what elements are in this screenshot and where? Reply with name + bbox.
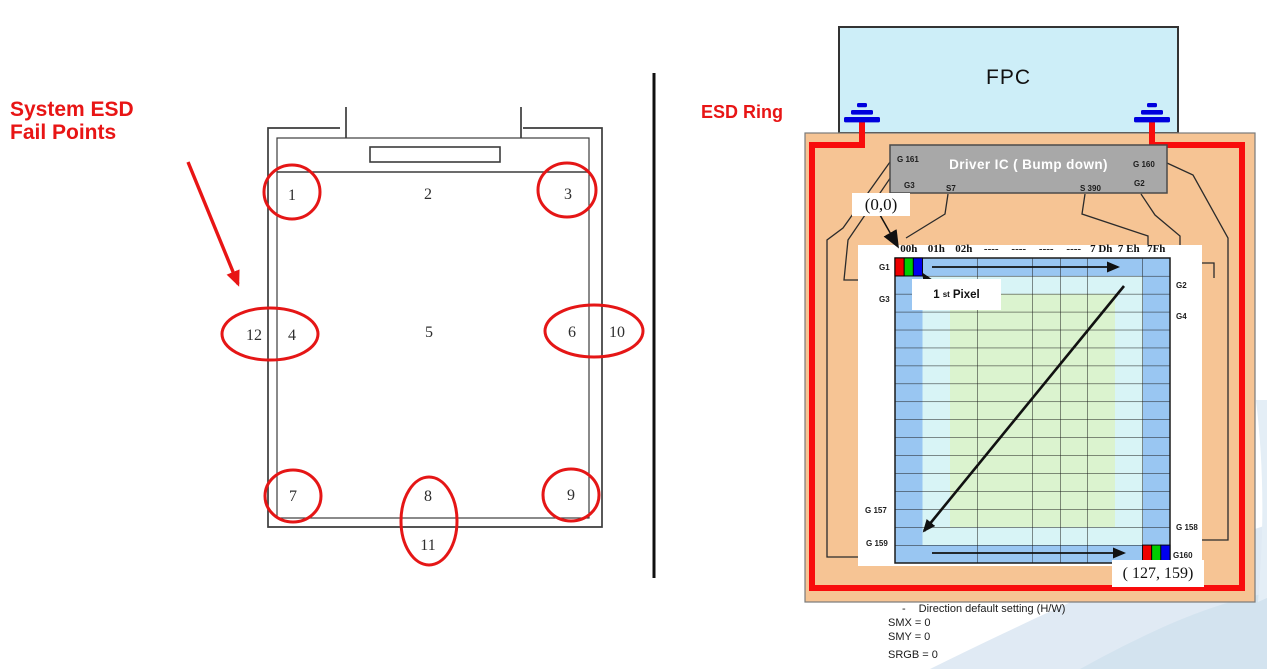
direction-settings-notes: -Direction default setting (H/W) SMX = 0… [888,602,1065,662]
notes-smx: SMX = 0 [888,616,1065,630]
first-pixel-callout: 1st Pixel [912,279,1001,310]
fail-point-2: 2 [424,186,432,204]
notes-smy: SMY = 0 [888,630,1065,644]
origin-coordinate-box: (0,0) [852,193,910,216]
fail-point-1: 1 [288,187,296,205]
col-header-d3: ---- [1033,243,1061,257]
pin-label-g160: G 160 [1133,160,1155,169]
col-header-01h: 01h [923,243,951,257]
fail-point-7: 7 [289,488,297,506]
system-esd-title-line1: System ESD [10,98,134,121]
col-header-7dh: 7 Dh [1088,243,1116,257]
fail-point-circles [222,163,643,565]
system-esd-title: System ESD Fail Points [10,98,134,144]
end-coordinate-box: ( 127, 159) [1112,560,1204,587]
fail-point-5: 5 [425,324,433,342]
notes-bullet: - [902,602,906,616]
row-label-g157: G 157 [865,506,887,515]
pin-label-s390: S 390 [1080,184,1101,193]
slide-canvas: System ESD Fail Points 1 2 3 4 5 6 7 8 9… [0,0,1267,669]
first-pixel-ordinal: st [943,290,950,299]
fail-point-9: 9 [567,487,575,505]
fail-point-12: 12 [246,327,262,345]
col-header-7eh: 7 Eh [1115,243,1143,257]
fail-point-4: 4 [288,327,296,345]
notes-title-row: -Direction default setting (H/W) [888,602,1065,616]
system-esd-title-line2: Fail Points [10,121,134,144]
fail-point-6: 6 [568,324,576,342]
col-header-d1: ---- [978,243,1006,257]
circle-point-12-4 [222,308,318,360]
first-pixel-word: Pixel [953,289,980,301]
fpc-label: FPC [839,66,1178,90]
fail-points-arrow [188,162,238,284]
circle-point-6-10 [545,305,643,357]
row-label-g3: G3 [879,295,890,304]
esd-ring-label: ESD Ring [701,102,783,123]
row-label-g2: G2 [1176,281,1187,290]
fail-point-8: 8 [424,488,432,506]
col-header-7fh: 7Fh [1143,243,1171,257]
speaker-slot [370,147,500,162]
pin-label-g161: G 161 [897,155,919,164]
row-label-g159: G 159 [866,539,888,548]
first-pixel-number: 1 [933,289,939,301]
col-header-d2: ---- [1005,243,1033,257]
grid-column-headers: 00h 01h 02h ---- ---- ---- ---- 7 Dh 7 E… [895,243,1170,257]
row-label-g1: G1 [879,263,890,272]
notes-title: Direction default setting (H/W) [919,603,1066,615]
row-label-g158: G 158 [1176,523,1198,532]
pin-label-g2: G2 [1134,179,1145,188]
col-header-d4: ---- [1060,243,1088,257]
row-label-g4: G4 [1176,312,1187,321]
fail-point-3: 3 [564,186,572,204]
pin-label-g3: G3 [904,181,915,190]
diagram-shapes [0,0,1267,669]
notes-srgb: SRGB = 0 [888,648,1065,662]
driver-ic-title: Driver IC ( Bump down) [890,157,1167,172]
col-header-00h: 00h [895,243,923,257]
device-inner-case [277,138,589,518]
col-header-02h: 02h [950,243,978,257]
pin-label-s7: S7 [946,184,956,193]
row-label-g160b: G160 [1173,551,1193,560]
first-pixel-rgb [895,258,923,276]
fail-point-10: 10 [609,324,625,342]
device-esd-diagram [268,73,654,578]
fail-point-11: 11 [420,537,435,555]
